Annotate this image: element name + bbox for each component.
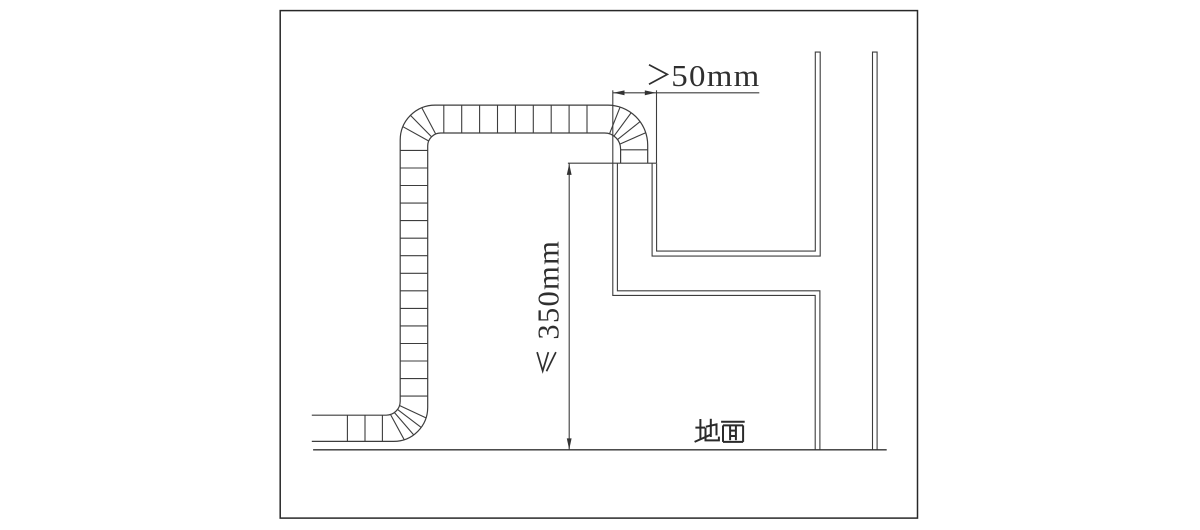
svg-text:350mm: 350mm: [531, 240, 565, 340]
svg-text:50mm: 50mm: [671, 59, 760, 93]
